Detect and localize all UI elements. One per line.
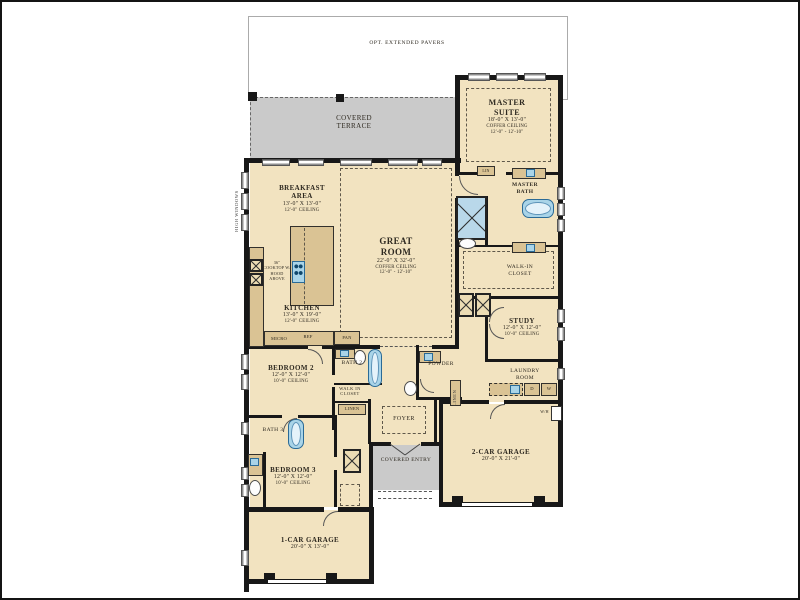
terrace-label: COVERED TERRACE xyxy=(319,114,389,131)
window xyxy=(241,172,249,189)
window xyxy=(422,159,442,166)
pantry-label: PAN xyxy=(337,335,357,341)
great-room-label: GREAT ROOM 22'-0" X 32'-0" COFFER CEILIN… xyxy=(374,236,418,276)
hall-closet-shelving xyxy=(340,484,360,506)
window xyxy=(557,309,565,323)
floor-plan: OPT. EXTENDED PAVERS COVERED TERRACE COV… xyxy=(0,0,800,600)
wall xyxy=(369,507,374,584)
window xyxy=(557,219,565,232)
wall xyxy=(439,402,443,507)
window xyxy=(298,159,324,166)
window xyxy=(241,193,249,210)
window xyxy=(241,354,249,370)
ac-closet-icon xyxy=(343,449,361,473)
bath2-tub-icon xyxy=(368,349,382,387)
bedroom2-closet-label: WALK IN CLOSET xyxy=(336,386,364,397)
window xyxy=(241,550,249,566)
ref-label: REF xyxy=(298,334,318,340)
sink-icon xyxy=(250,458,259,466)
garage-door-notch xyxy=(534,496,545,503)
laundry-label: LAUNDRY ROOM xyxy=(508,368,542,381)
window xyxy=(557,368,565,380)
entry-label: COVERED ENTRY xyxy=(376,457,436,464)
garage1-label: 1-CAR GARAGE 20'-0" X 13'-0" xyxy=(260,536,360,551)
linen-hall-label: LINEN xyxy=(338,406,366,412)
bedroom2-label: BEDROOM 2 12'-0" X 12'-0" 10'-0" CEILING xyxy=(256,364,326,385)
master-tub-icon xyxy=(522,199,554,218)
water-heater-label: W/H xyxy=(538,409,551,414)
sink-icon xyxy=(526,244,535,252)
foyer-label: FOYER xyxy=(383,416,425,423)
window xyxy=(496,73,518,81)
wall xyxy=(244,507,324,512)
wall-oven-icon xyxy=(249,259,263,272)
wall xyxy=(439,400,489,404)
front-door-icon xyxy=(388,443,422,457)
breakfast-label: BREAKFAST AREA 13'-0" X 13'-0" 12'-0" CE… xyxy=(272,184,332,213)
pavers-label: OPT. EXTENDED PAVERS xyxy=(307,40,507,47)
wall xyxy=(504,400,563,404)
bedroom3-label: BEDROOM 3 12'-0" X 12'-0" 10'-0" CEILING xyxy=(258,466,328,487)
master-closet-label: WALK-IN CLOSET xyxy=(503,264,537,277)
window xyxy=(388,159,418,166)
wall xyxy=(485,359,559,362)
window xyxy=(468,73,490,81)
sink-icon xyxy=(424,353,433,361)
window xyxy=(557,327,565,341)
toilet-icon xyxy=(459,238,476,249)
window xyxy=(241,484,249,497)
sink-icon xyxy=(526,169,535,177)
terrace-column xyxy=(248,92,257,101)
garage-door-opening xyxy=(268,580,326,583)
laundry-sink-icon xyxy=(510,385,520,394)
wall-oven-icon xyxy=(249,273,263,286)
window xyxy=(557,203,565,216)
master-suite-label: MASTER SUITE 18'-0" X 13'-0" COFFER CEIL… xyxy=(484,98,530,136)
washer-label: W xyxy=(541,386,557,392)
cooktop-icon xyxy=(292,261,305,283)
built-in-cabinet-icon xyxy=(458,293,474,317)
window xyxy=(241,374,249,390)
wall xyxy=(369,442,373,509)
window xyxy=(340,159,372,166)
wall xyxy=(432,345,459,349)
opening-dashed xyxy=(380,346,432,347)
window xyxy=(241,422,249,435)
garage-door-notch xyxy=(326,573,337,580)
wall xyxy=(334,401,368,403)
toilet-icon xyxy=(404,381,417,396)
window xyxy=(241,214,249,231)
garage2-label: 2-CAR GARAGE 20'-0" X 21'-0" xyxy=(451,448,551,463)
wall xyxy=(434,399,437,444)
garage-door-notch xyxy=(264,573,275,580)
built-in-cabinet-icon xyxy=(475,293,491,317)
sink-icon xyxy=(340,350,349,357)
linen-powder-label: LINEN xyxy=(452,382,457,406)
wall xyxy=(368,399,371,444)
dryer-label: D xyxy=(524,386,540,392)
wall xyxy=(334,415,337,457)
kitchen-label: KITCHEN 13'-0" X 19'-0" 12'-0" CEILING xyxy=(274,304,330,325)
study-label: STUDY 12'-0" X 12'-0" 10'-0" CEILING xyxy=(496,317,548,338)
wall xyxy=(558,75,563,507)
water-heater-icon xyxy=(551,406,562,421)
bath3-label: BATH 3 xyxy=(261,427,285,434)
wall xyxy=(334,470,337,507)
master-bath-label: MASTER BATH xyxy=(507,182,543,195)
window xyxy=(557,187,565,200)
bath2-label: BATH 2 xyxy=(340,360,364,367)
window xyxy=(262,159,290,166)
wall xyxy=(298,415,335,418)
garage-door-notch xyxy=(452,496,463,503)
wall xyxy=(248,415,282,418)
lin-label: LIN xyxy=(477,168,495,173)
master-shower-icon xyxy=(456,196,487,240)
entry-steps xyxy=(378,491,432,499)
powder-label: POWDER xyxy=(422,361,460,368)
micro-label: MICRO xyxy=(266,336,292,342)
terrace-column xyxy=(336,94,344,102)
high-windows-label: HIGH WINDOWS xyxy=(234,170,239,232)
garage-door-opening xyxy=(462,503,532,506)
window xyxy=(524,73,546,81)
cooktop-note: 36" COOKTOP W/ HOOD ABOVE xyxy=(263,260,291,281)
